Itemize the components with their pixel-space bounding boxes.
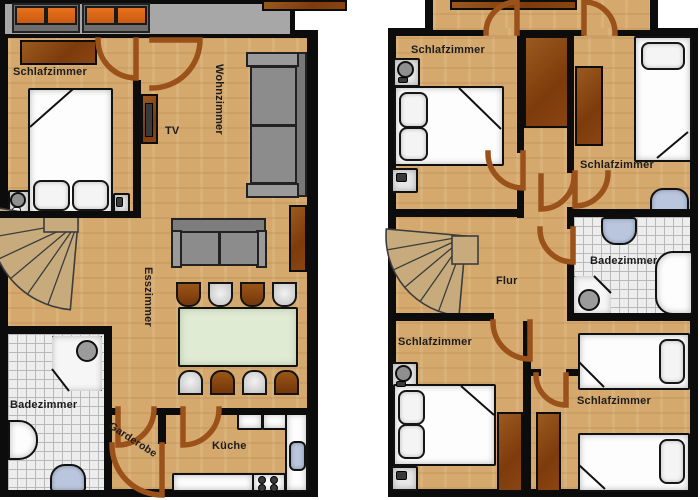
room-label-esszimmer: Esszimmer [142, 267, 154, 327]
door-swing-icon [536, 375, 566, 405]
door-swing-icon [493, 322, 530, 359]
room-label-badezimmer: Badezimmer [590, 255, 657, 267]
door-swing-icon [575, 173, 608, 206]
door-swing-icon [486, 2, 517, 33]
room-label-schlafzimmer: Schlafzimmer [411, 44, 485, 56]
door-swing-icon [584, 2, 615, 33]
room-label-kueche: Küche [212, 440, 247, 452]
door-swing-icon [540, 229, 573, 262]
room-label-tv: TV [165, 125, 179, 137]
room-label-wohnzimmer: Wohnzimmer [213, 64, 225, 135]
room-label-schlafzimmer: Schlafzimmer [13, 66, 87, 78]
floorplan-image: Schlafzimmer Wohnzimmer TV Esszimmer Bad… [0, 0, 700, 500]
door-swing-overlay [0, 0, 700, 500]
room-label-schlafzimmer: Schlafzimmer [580, 159, 654, 171]
room-label-flur: Flur [496, 275, 518, 287]
door-swing-icon [98, 40, 136, 78]
door-swing-icon [488, 153, 523, 188]
room-label-schlafzimmer: Schlafzimmer [398, 336, 472, 348]
room-label-schlafzimmer: Schlafzimmer [577, 395, 651, 407]
room-label-badezimmer: Badezimmer [10, 399, 77, 411]
door-swing-icon [541, 176, 574, 209]
door-swing-icon [152, 40, 200, 88]
